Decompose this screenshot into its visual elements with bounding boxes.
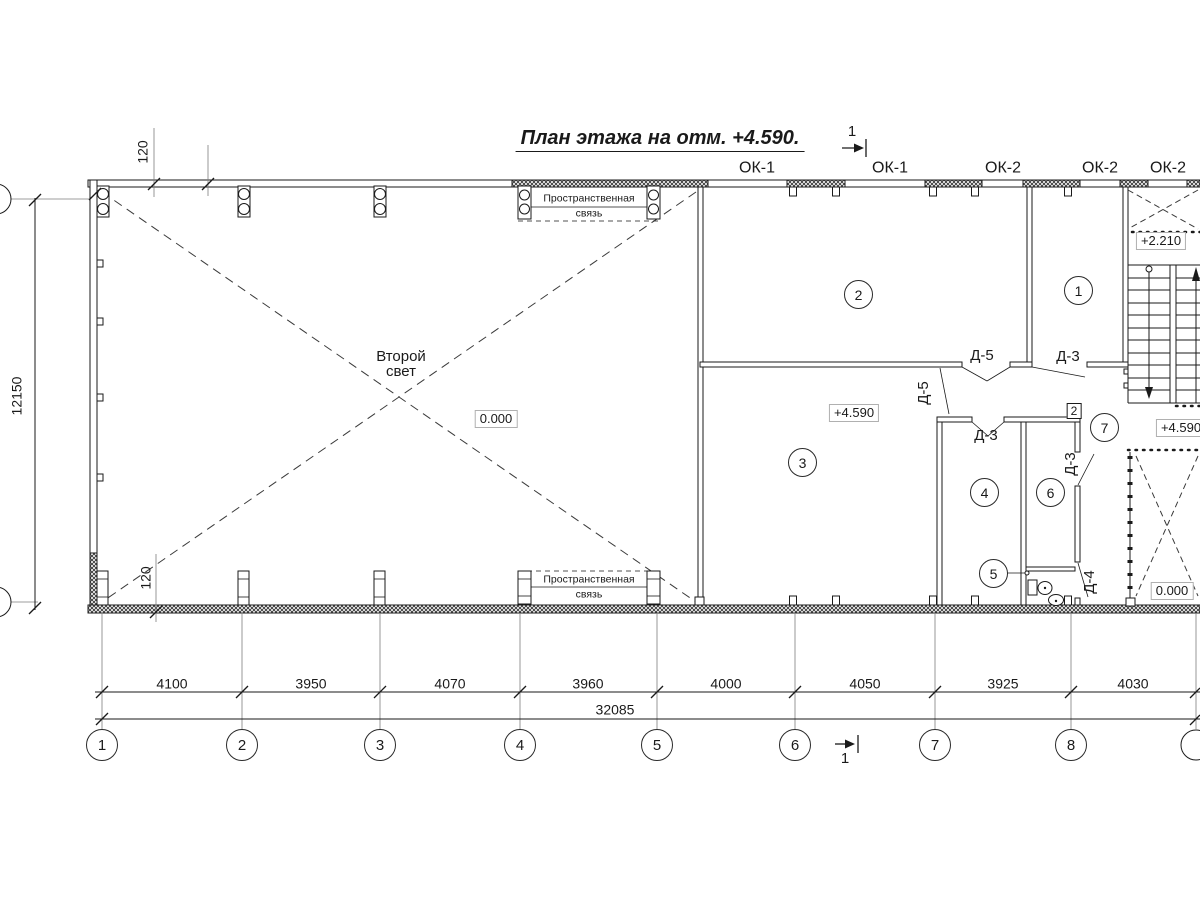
drawing-title: План этажа на отм. +4.590. — [516, 128, 805, 152]
door-mark-d4-v: Д-4 — [1082, 570, 1098, 594]
elevation-ground-floor: 0.000 — [1151, 582, 1194, 600]
elevation-room3: +4.590 — [829, 404, 879, 422]
room-number-2: 2 — [844, 280, 873, 309]
room-number-4: 4 — [970, 478, 999, 507]
dim-span-3: 4070 — [434, 677, 465, 692]
dim-span-4: 3960 — [572, 677, 603, 692]
dim-span-1: 4100 — [156, 677, 187, 692]
hall-void-cross — [102, 192, 696, 602]
door-mark-d5-h: Д-5 — [970, 348, 994, 364]
room-number-3: 3 — [788, 448, 817, 477]
spatial-tie-top-line2: связь — [576, 208, 603, 219]
door-mark-d3-h1: Д-3 — [1056, 349, 1080, 365]
floor-plan-canvas: План этажа на отм. +4.590. ОК-1 ОК-1 ОК-… — [0, 0, 1200, 900]
window-mark-ok2-a: ОК-2 — [985, 161, 1021, 178]
room-number-1: 1 — [1064, 276, 1093, 305]
axis-circle-8: 8 — [1055, 729, 1087, 761]
sanitary-fixtures — [1007, 571, 1064, 606]
elevation-stair-landing: +2.210 — [1136, 232, 1186, 250]
window-mark-ok1-b: ОК-1 — [872, 161, 908, 178]
door-mark-d5-v: Д-5 — [916, 381, 932, 405]
room-number-5: 5 — [979, 559, 1008, 588]
axis-circle-6: 6 — [779, 729, 811, 761]
door-mark-d3-h2: Д-3 — [974, 428, 998, 444]
axis-circle-3: 3 — [364, 729, 396, 761]
interior-walls — [698, 187, 1128, 605]
dim-span-5: 4000 — [710, 677, 741, 692]
dim-span-7: 3925 — [987, 677, 1018, 692]
exterior-walls — [88, 180, 1200, 613]
dim-span-8: 4030 — [1117, 677, 1148, 692]
dim-offset-bottom: 120 — [139, 566, 154, 589]
window-mark-ok1-a: ОК-1 — [739, 161, 775, 178]
elevation-hall: 0.000 — [475, 410, 518, 428]
window-mark-ok2-c: ОК-2 — [1150, 161, 1186, 178]
elevation-corridor: +4.590 — [1156, 419, 1200, 437]
door-mark-d3-v: Д-3 — [1063, 452, 1079, 476]
axis-circle-5: 5 — [641, 729, 673, 761]
dim-offset-top: 120 — [136, 140, 151, 163]
dim-span-2: 3950 — [295, 677, 326, 692]
spatial-tie-bottom-line2: связь — [576, 589, 603, 600]
section-mark-top: 1 — [848, 124, 856, 140]
axis-circle-4: 4 — [504, 729, 536, 761]
axis-circle-2: 2 — [226, 729, 258, 761]
section-mark-bottom: 1 — [841, 751, 849, 767]
second-light-label-line2: свет — [386, 364, 416, 380]
axis-circle-7: 7 — [919, 729, 951, 761]
stairs — [1124, 190, 1200, 606]
dim-span-6: 4050 — [849, 677, 880, 692]
dim-total: 32085 — [596, 703, 635, 718]
room-number-7: 7 — [1090, 413, 1119, 442]
door-leaves — [940, 367, 1094, 597]
axis-circle-1: 1 — [86, 729, 118, 761]
section-arrows — [835, 139, 866, 753]
dim-height: 12150 — [10, 377, 25, 416]
spatial-tie-top-line1: Пространственная — [543, 193, 634, 204]
spatial-tie-bottom-line1: Пространственная — [543, 574, 634, 585]
window-mark-ok2-b: ОК-2 — [1082, 161, 1118, 178]
room-number-6: 6 — [1036, 478, 1065, 507]
dimension-lines — [0, 178, 1200, 760]
node-marker-2: 2 — [1067, 403, 1082, 419]
